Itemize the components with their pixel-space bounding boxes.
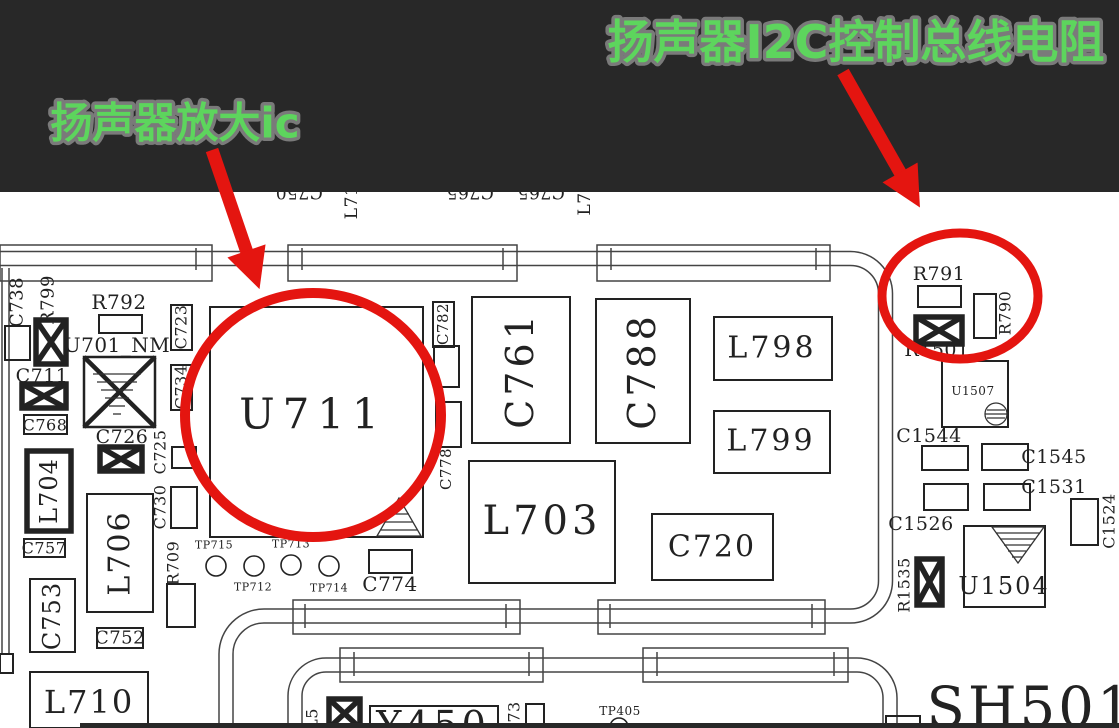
refdes-label: C778 (437, 448, 455, 490)
pcb-layout-diagram: C750L71C765C765L7C738R799R792U701_NMC711… (0, 0, 1119, 728)
refdes-label: R709 (164, 541, 183, 586)
refdes-label: C720 (668, 530, 756, 565)
refdes-label: C725 (151, 430, 170, 475)
screenshot-root: C750L71C765C765L7C738R799R792U701_NMC711… (0, 0, 1119, 728)
refdes-label: C1524 (1100, 493, 1119, 548)
refdes-label: R1535 (895, 557, 914, 612)
refdes-label: L706 (103, 510, 138, 595)
refdes-label: C711 (16, 365, 69, 387)
refdes-label: C726 (96, 426, 149, 448)
refdes-label: U1507 (951, 384, 994, 398)
refdes-label: C1526 (888, 513, 953, 535)
refdes-label: TP405 (599, 704, 640, 718)
refdes-label: C774 (362, 572, 417, 596)
refdes-label: C782 (434, 303, 452, 345)
refdes-label: L710 (44, 683, 134, 721)
refdes-label: C723 (172, 305, 191, 350)
refdes-label: 73 (505, 701, 524, 722)
refdes-label: C1531 (1021, 476, 1086, 498)
refdes-label: R790 (996, 291, 1015, 336)
refdes-label: L7 (575, 192, 595, 215)
refdes-label: TP714 (310, 582, 348, 595)
refdes-label: C768 (23, 416, 68, 435)
refdes-label: L704 (35, 458, 63, 524)
refdes-label: L799 (726, 424, 815, 459)
refdes-label: U1504 (958, 572, 1049, 600)
refdes-label: U711 (239, 390, 387, 439)
refdes-label: R792 (91, 290, 146, 314)
refdes-label: C738 (7, 277, 28, 327)
bottom-dark-strip (80, 723, 1119, 728)
refdes-label: R791 (913, 263, 966, 285)
refdes-label: TP712 (234, 581, 272, 594)
refdes-label: C757 (22, 539, 67, 558)
refdes-label: C1545 (1021, 446, 1086, 468)
refdes-label: SH501 (926, 676, 1119, 728)
refdes-label: C753 (38, 582, 66, 650)
refdes-label: TP715 (195, 539, 233, 552)
refdes-label: C1544 (896, 425, 961, 447)
banner-label-speaker-i2c-bus-resistor: 扬声器I2C控制总线电阻 (608, 15, 1105, 69)
refdes-label: L703 (483, 498, 602, 544)
refdes-label: C761 (498, 311, 542, 429)
refdes-label: R799 (38, 275, 59, 325)
refdes-label: C752 (95, 628, 145, 649)
banner-label-speaker-amplifier-ic: 扬声器放大ic (50, 99, 299, 148)
refdes-label: C730 (151, 485, 170, 530)
refdes-label: U701_NM (64, 333, 171, 357)
refdes-label: L798 (727, 331, 816, 366)
refdes-label: C788 (620, 312, 664, 430)
